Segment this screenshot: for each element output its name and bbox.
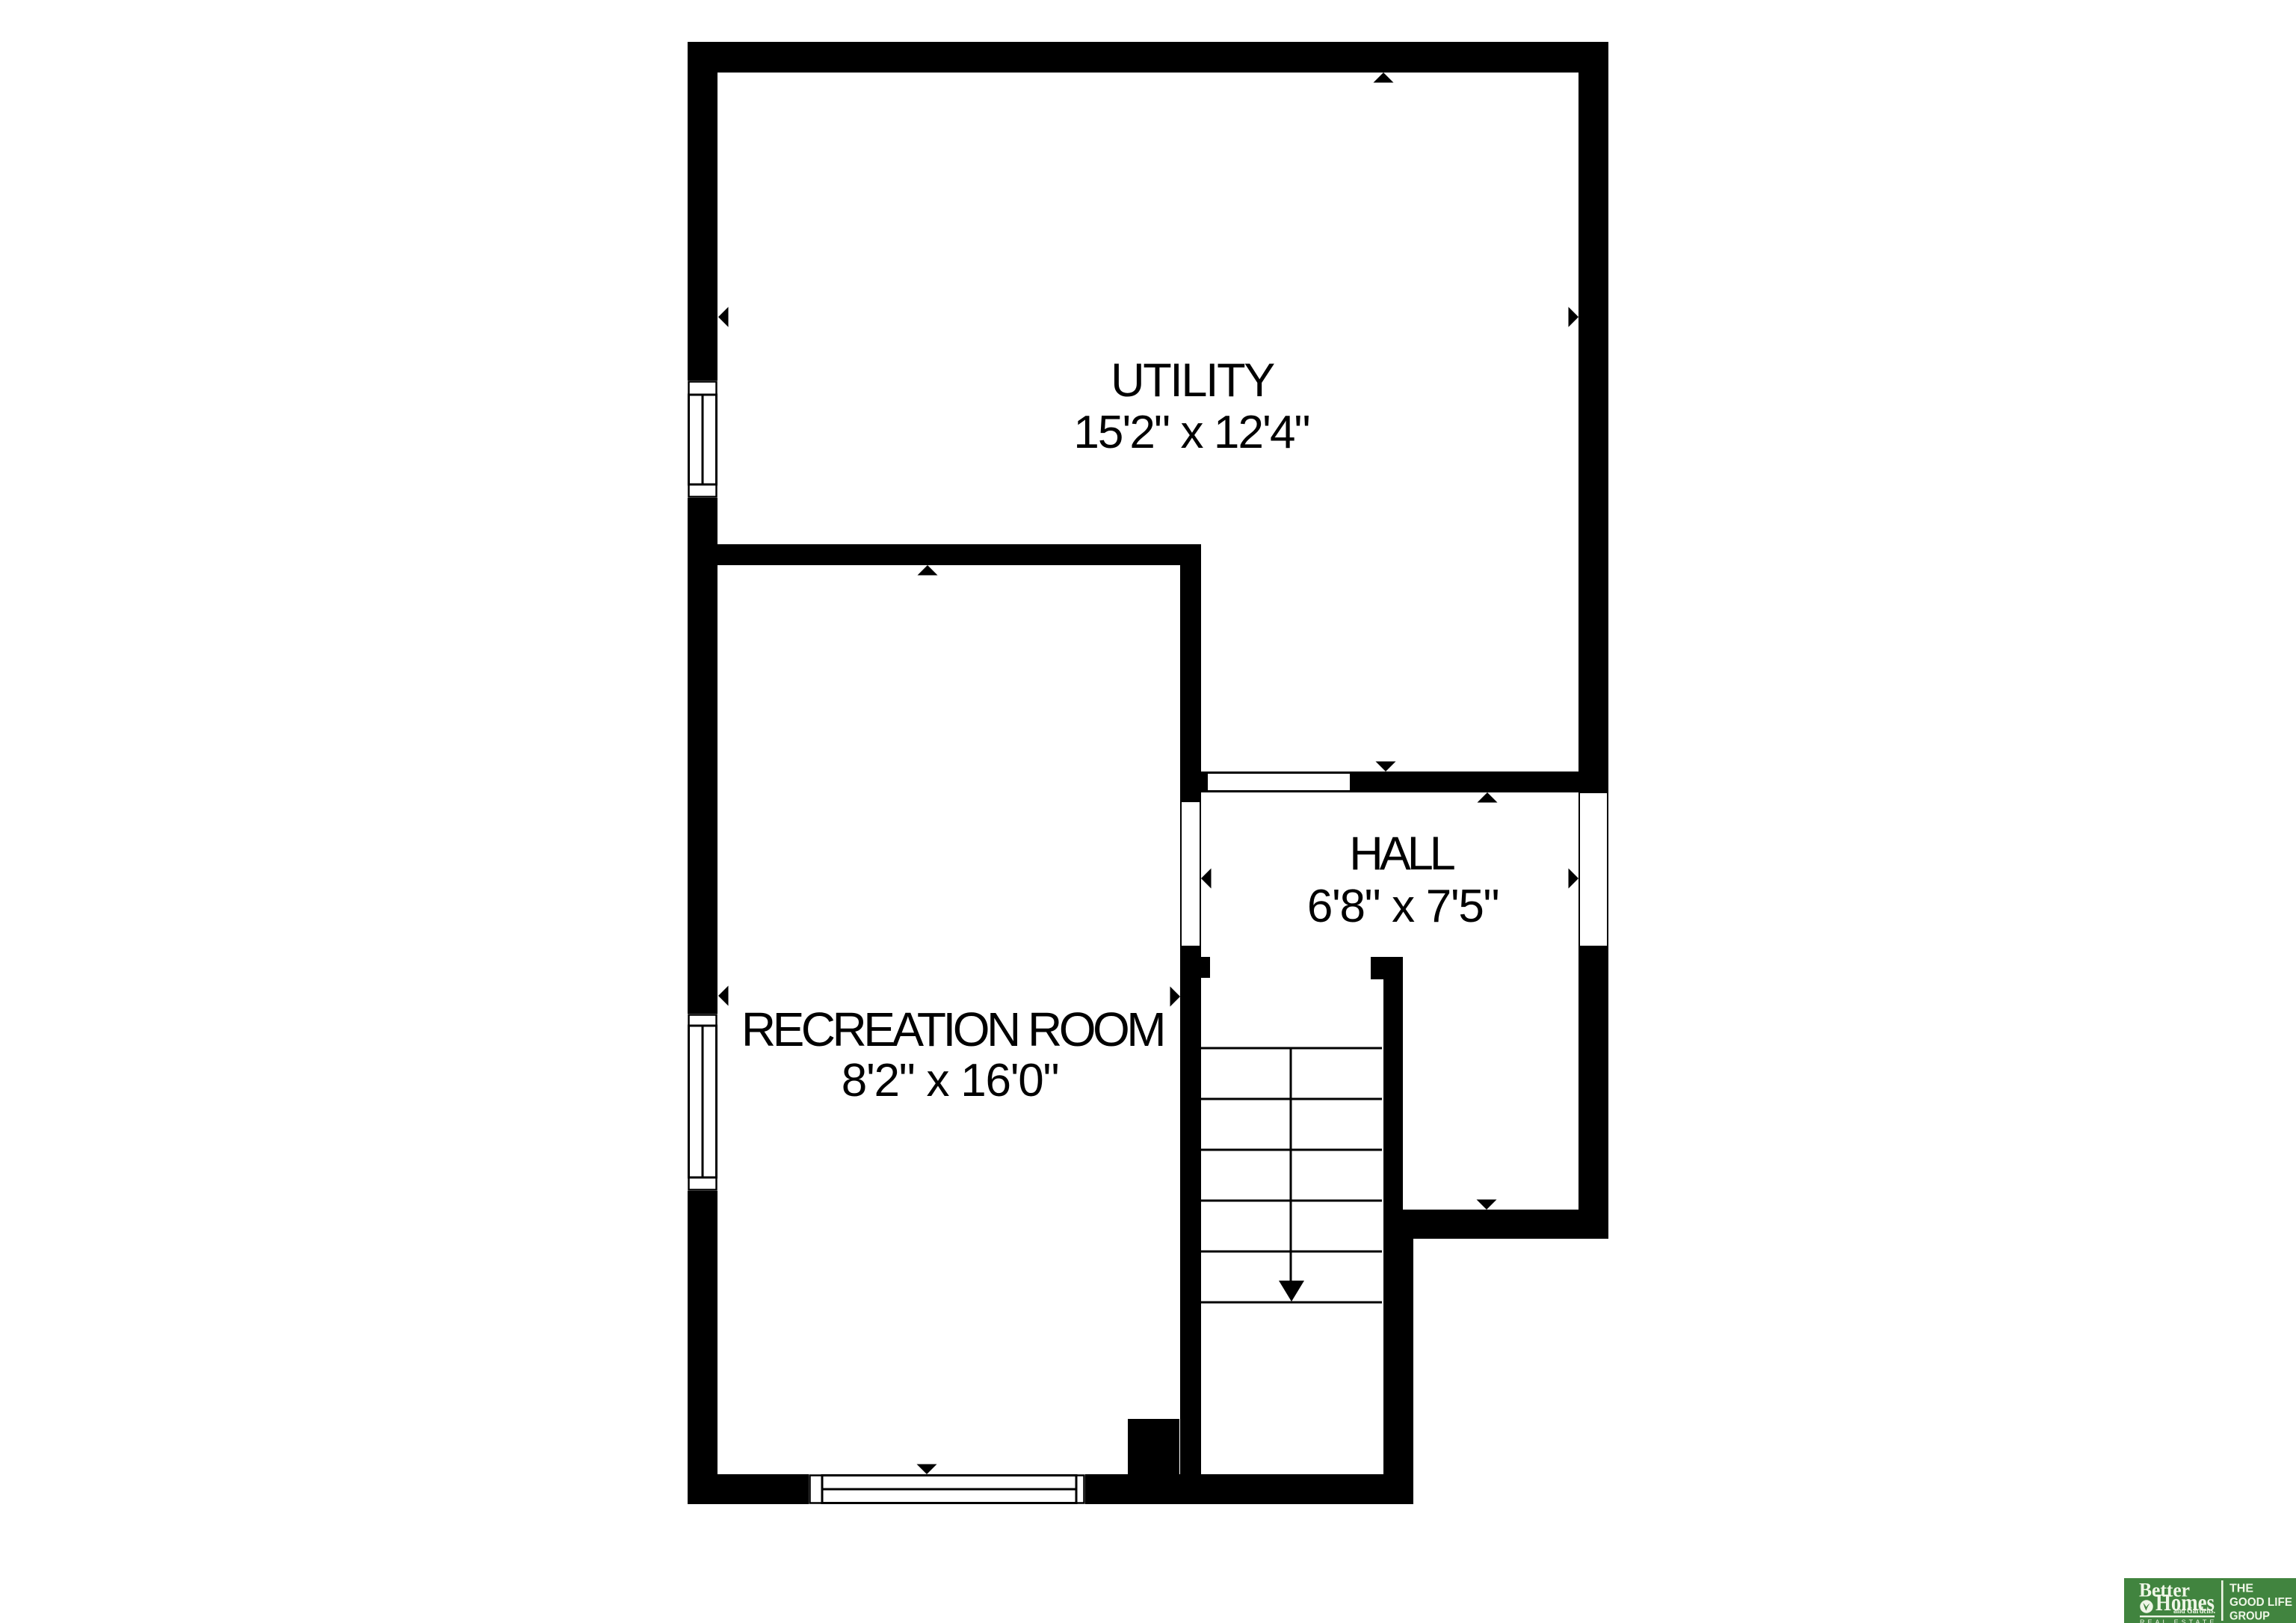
svg-text:6'8" x 7'5": 6'8" x 7'5" xyxy=(1307,881,1499,932)
svg-text:GROUP: GROUP xyxy=(2229,1610,2270,1623)
svg-text:RECREATION ROOM: RECREATION ROOM xyxy=(741,1003,1163,1056)
svg-text:8'2" x 16'0": 8'2" x 16'0" xyxy=(842,1055,1059,1106)
svg-text:HALL: HALL xyxy=(1349,828,1454,880)
svg-text:UTILITY: UTILITY xyxy=(1111,354,1274,407)
svg-text:REAL ESTATE: REAL ESTATE xyxy=(2140,1619,2217,1623)
svg-text:GOOD LIFE: GOOD LIFE xyxy=(2229,1596,2292,1609)
svg-text:THE: THE xyxy=(2229,1583,2253,1595)
svg-text:15'2" x 12'4": 15'2" x 12'4" xyxy=(1073,407,1309,458)
svg-text:and Gardens.: and Gardens. xyxy=(2173,1605,2215,1616)
